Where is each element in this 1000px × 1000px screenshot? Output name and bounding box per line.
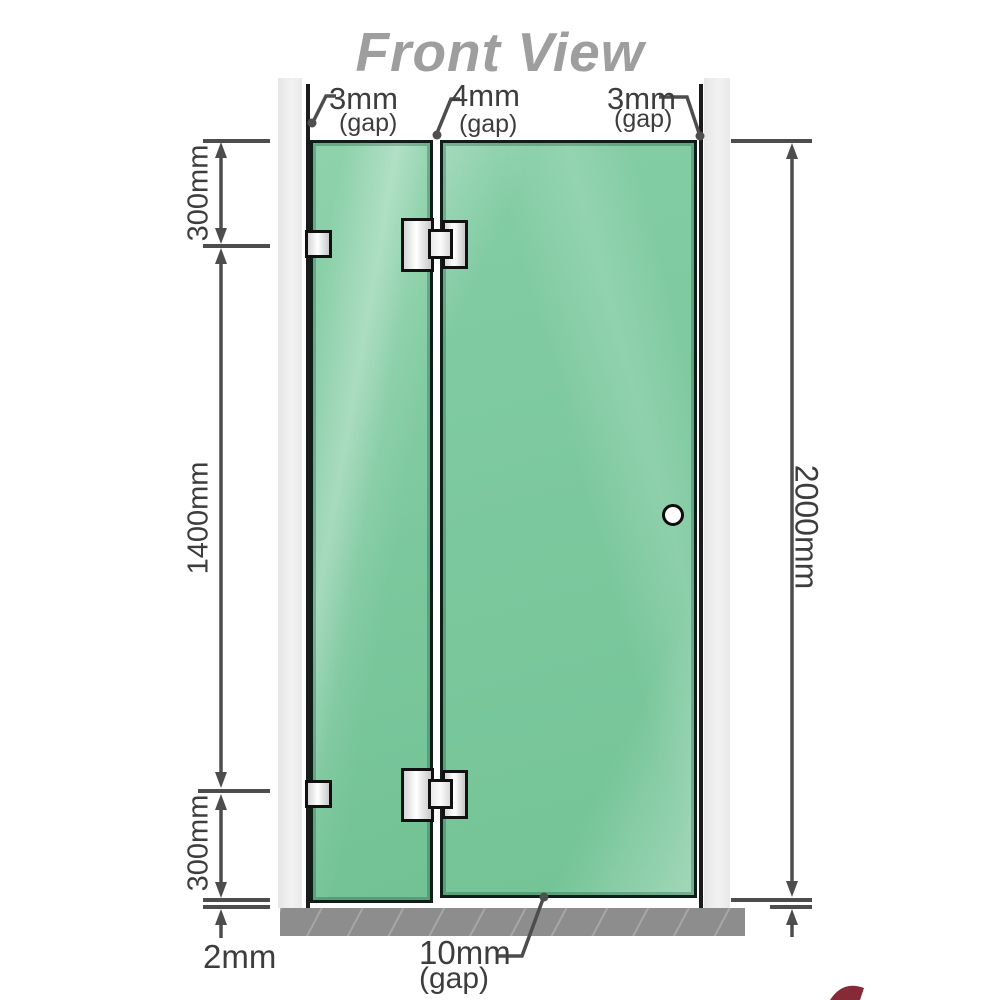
gap-suffix-top-left: (gap) [339,109,397,138]
gap-label-top-middle: 4mm [451,78,520,114]
floor-gap-label: 2mm [203,938,276,976]
dimension-lines [221,156,792,938]
gap-suffix-top-middle: (gap) [459,110,517,139]
gap-suffix-top-right: (gap) [614,105,672,134]
front-view-diagram: Front View [0,0,1000,1000]
leader-lines [313,96,699,956]
dimension-arrowheads [215,142,798,925]
logo-swoosh [830,986,864,1000]
dim-label-left-top: 300mm [183,145,216,242]
dimension-overlay [0,0,1000,1000]
dim-label-left-bottom: 300mm [183,795,216,892]
dim-label-right-full: 2000mm [788,465,825,590]
dim-label-left-middle: 1400mm [183,462,216,575]
leader-dots [308,119,705,902]
dimension-ticks [198,141,812,907]
door-gap-suffix: (gap) [419,962,489,996]
